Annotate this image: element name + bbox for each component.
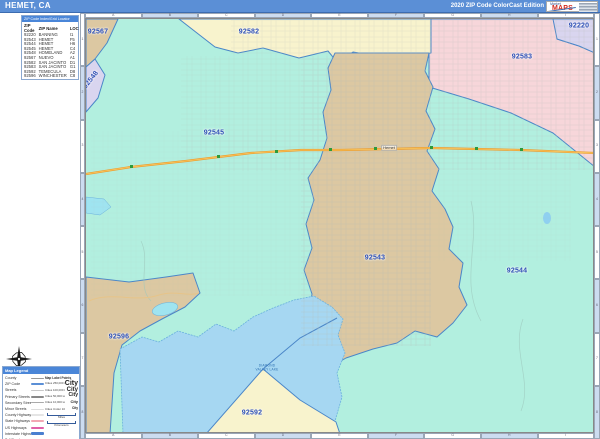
title-bar: HEMET, CA 2020 ZIP Code ColorCast Editio… xyxy=(0,0,600,13)
legend-swatch xyxy=(31,420,44,422)
grid-cell: E xyxy=(311,433,368,439)
city-label-hemet: Hemet xyxy=(381,145,397,151)
legend-item-label: County Highways xyxy=(5,413,31,417)
grid-cell: D xyxy=(255,433,312,439)
legend-item-label: Secondary Streets xyxy=(5,401,31,405)
legend-swatch xyxy=(31,414,44,416)
city-size-label: Cities 50,000 to 99,999 xyxy=(45,394,65,398)
grid-cell: B xyxy=(142,433,199,439)
scale-bar xyxy=(47,413,76,416)
scale-bars: MilesKilometers xyxy=(45,413,78,427)
legend-title: Map Legend xyxy=(3,367,79,374)
logo-wordmark: Market MAPS xyxy=(547,2,579,11)
legend-item-label: State Highways xyxy=(5,419,31,423)
grid-cell: F xyxy=(368,433,425,439)
legend-item-label: Primary Streets xyxy=(5,395,31,399)
city-size-label: Cities 100,000 to 249,999 xyxy=(45,388,65,392)
city-size-sample: City xyxy=(72,407,78,410)
legend-item-label: Minor Streets xyxy=(5,407,31,411)
grid-cell: 8 xyxy=(594,386,600,439)
zip-index-table: ZIP CodeZIP NameLOC 92220BANNINGI192543H… xyxy=(22,22,80,79)
logo-fineprint xyxy=(579,3,597,12)
legend-swatch xyxy=(31,402,44,403)
legend-item-label: US Highways xyxy=(5,426,31,430)
page-title: HEMET, CA xyxy=(5,1,51,10)
street-grid-texture xyxy=(91,131,301,296)
street-grid-texture xyxy=(231,20,431,56)
legend-item-label: County xyxy=(5,376,31,380)
lake-label: DIAMOND VALLEY LAKE xyxy=(254,364,280,371)
table-row: 92596WINCHESTERC8 xyxy=(22,74,80,79)
scale-caption: Kilometers xyxy=(45,424,78,428)
legend-swatch xyxy=(31,432,44,435)
grid-cell: 5 xyxy=(594,226,600,279)
scale-bar xyxy=(47,421,76,424)
zip-label-92545: 92545 xyxy=(204,130,224,137)
scale-caption: Miles xyxy=(45,416,78,420)
legend-items: CountyZIP CodeStreetsPrimary StreetsSeco… xyxy=(5,375,45,439)
marketmaps-logo: Market MAPS xyxy=(546,1,598,12)
zip-label-92596: 92596 xyxy=(109,334,129,341)
grid-cell: 2 xyxy=(594,66,600,119)
zip-label-92543: 92543 xyxy=(365,255,385,262)
legend-swatch xyxy=(31,396,44,398)
zip-index-panel: ZIP Code Index/Grid Locator ZIP CodeZIP … xyxy=(21,15,79,80)
city-size-label: Cities 250,000 & Over xyxy=(45,381,65,385)
street-grid-texture xyxy=(431,171,571,261)
grid-cell: 3 xyxy=(594,120,600,173)
grid-cell: I xyxy=(538,433,595,439)
grid-cell: H xyxy=(481,433,538,439)
legend-swatch xyxy=(31,427,44,429)
legend-item-label: ZIP Code xyxy=(5,382,31,386)
grid-cell: 4 xyxy=(594,173,600,226)
zip-label-92544: 92544 xyxy=(507,268,527,275)
legend-item-label: Interstate Highways xyxy=(5,432,31,436)
table-cell: 92596 xyxy=(22,74,37,79)
grid-cell: G xyxy=(424,433,481,439)
zip-label-92220: 92220 xyxy=(569,23,589,30)
zip-label-92583: 92583 xyxy=(512,54,532,61)
table-cell: C8 xyxy=(68,74,80,79)
grid-ruler-bottom: ABCDEFGHI xyxy=(85,433,594,439)
zip-label-92592: 92592 xyxy=(242,410,262,417)
grid-cell: 7 xyxy=(594,333,600,386)
zip-label-92582: 92582 xyxy=(239,29,259,36)
grid-ruler-right: 12345678 xyxy=(594,13,600,439)
map-legend: Map Legend CountyZIP CodeStreetsPrimary … xyxy=(2,366,80,439)
grid-cell: 6 xyxy=(594,279,600,332)
street-grid-texture xyxy=(301,56,431,346)
map-canvas: 9256792548925829258392220925459254392544… xyxy=(85,18,594,433)
city-size-label: Cities 10,000 to 49,999 xyxy=(45,400,65,404)
legend-item-label: Streets xyxy=(5,388,31,392)
zip-label-92567: 92567 xyxy=(88,29,108,36)
map-svg xyxy=(86,19,594,433)
grid-cell: A xyxy=(85,433,142,439)
city-size-sample: City xyxy=(69,393,78,398)
legend-label-points: Map Label Points Cities 250,000 & OverCi… xyxy=(45,375,78,439)
legend-swatch xyxy=(31,390,44,391)
grid-cell: C xyxy=(198,433,255,439)
edition-label: 2020 ZIP Code ColorCast Edition xyxy=(451,3,544,9)
table-cell: WINCHESTER xyxy=(37,74,68,79)
city-size-sample: City xyxy=(70,400,78,404)
map-page: HEMET, CA 2020 ZIP Code ColorCast Editio… xyxy=(0,0,600,439)
legend-swatch xyxy=(31,378,44,379)
grid-cell: 1 xyxy=(594,13,600,66)
sidebar: ZIP Code Index/Grid Locator ZIP CodeZIP … xyxy=(0,13,80,439)
city-size-label: Cities Under 10,000 xyxy=(45,407,65,411)
city-size-row: Cities Under 10,000City xyxy=(45,406,78,412)
legend-swatch xyxy=(31,383,44,385)
legend-swatch xyxy=(31,409,44,410)
